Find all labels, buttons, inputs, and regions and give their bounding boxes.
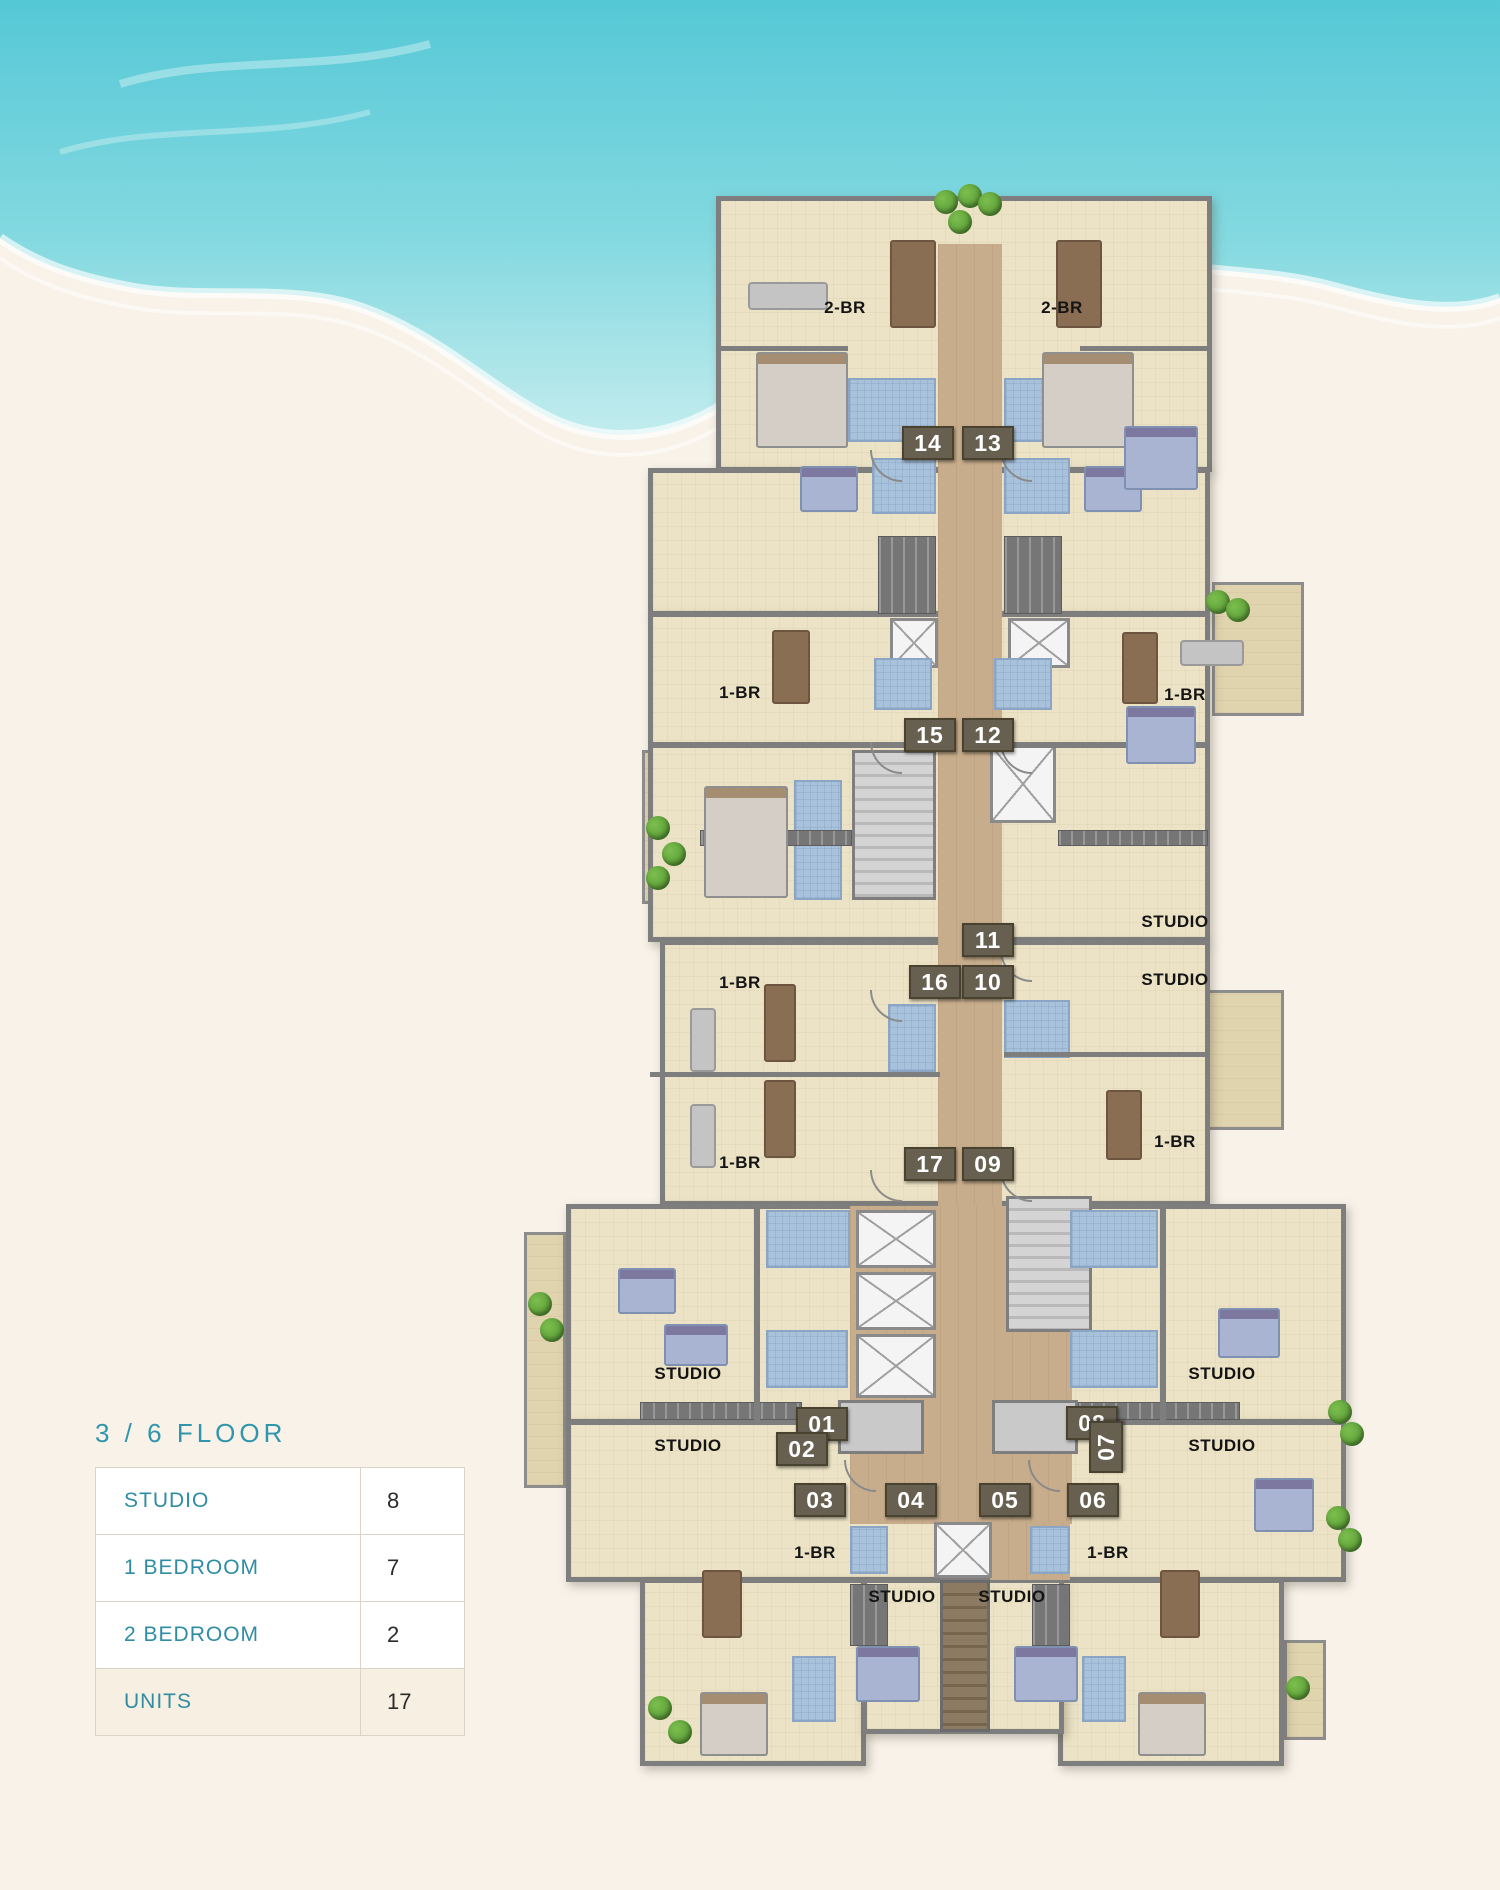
- table-row: 2 BEDROOM 2: [96, 1602, 464, 1669]
- page-canvas: 1413151211161017090108020703040506 2-BR2…: [0, 0, 1500, 1890]
- row-label: 2 BEDROOM: [96, 1602, 361, 1668]
- unit-type-label: 1-BR: [695, 973, 785, 993]
- row-value: 17: [361, 1669, 466, 1735]
- table-row: 1 BEDROOM 7: [96, 1535, 464, 1602]
- row-label: 1 BEDROOM: [96, 1535, 361, 1601]
- unit-type-label: 1-BR: [1063, 1543, 1153, 1563]
- unit-type-label: 1-BR: [770, 1543, 860, 1563]
- unit-type-label: STUDIO: [1177, 1364, 1267, 1384]
- unit-type-label: STUDIO: [857, 1587, 947, 1607]
- unit-summary-table: STUDIO 8 1 BEDROOM 7 2 BEDROOM 2 UNITS 1…: [95, 1467, 465, 1736]
- row-value: 8: [361, 1468, 466, 1534]
- row-label: UNITS: [96, 1669, 361, 1735]
- unit-type-label: STUDIO: [1130, 970, 1220, 990]
- row-value: 2: [361, 1602, 466, 1668]
- unit-type-label: STUDIO: [1177, 1436, 1267, 1456]
- row-label: STUDIO: [96, 1468, 361, 1534]
- table-row: STUDIO 8: [96, 1468, 464, 1535]
- unit-type-label: 2-BR: [800, 298, 890, 318]
- unit-type-label: 1-BR: [695, 1153, 785, 1173]
- unit-type-label: STUDIO: [967, 1587, 1057, 1607]
- unit-type-label: STUDIO: [643, 1364, 733, 1384]
- table-row-total: UNITS 17: [96, 1669, 464, 1735]
- floor-title: 3 / 6 FLOOR: [95, 1418, 465, 1449]
- floor-legend: 3 / 6 FLOOR STUDIO 8 1 BEDROOM 7 2 BEDRO…: [95, 1418, 465, 1736]
- row-value: 7: [361, 1535, 466, 1601]
- unit-type-label: STUDIO: [1130, 912, 1220, 932]
- unit-type-label: 1-BR: [1140, 685, 1230, 705]
- unit-type-label: STUDIO: [643, 1436, 733, 1456]
- unit-type-label: 1-BR: [1130, 1132, 1220, 1152]
- unit-type-label: 2-BR: [1017, 298, 1107, 318]
- unit-type-label: 1-BR: [695, 683, 785, 703]
